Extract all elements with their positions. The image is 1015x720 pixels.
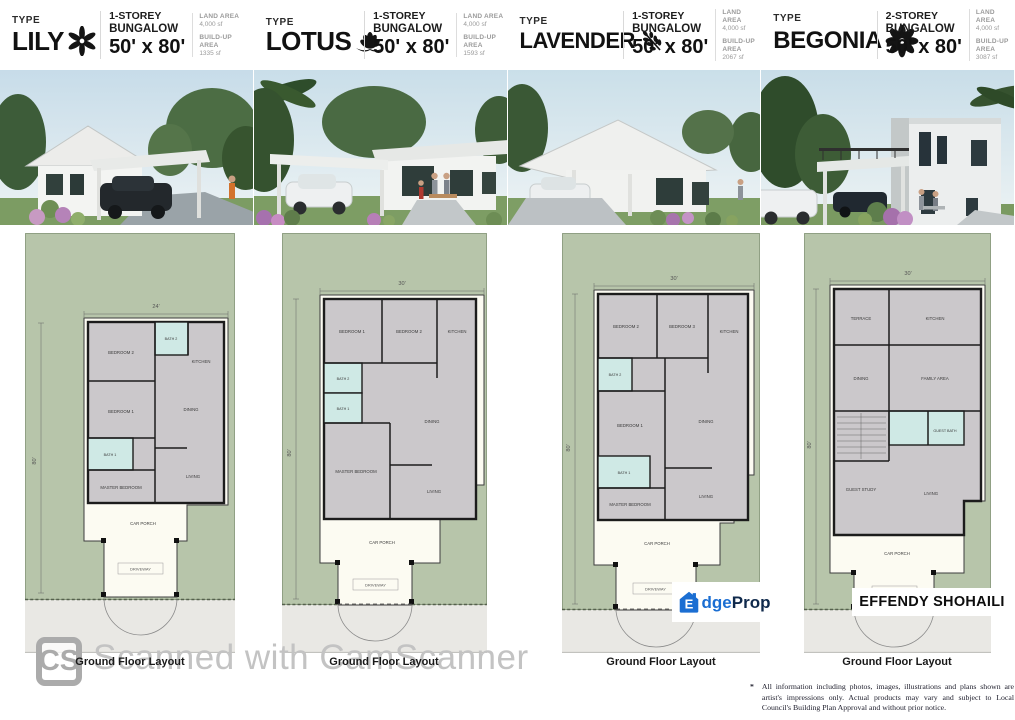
room-label: DRIVEWAY [645, 587, 666, 592]
room-label: BATH 2 [337, 377, 350, 381]
lotus-render-illustration [254, 70, 508, 225]
plan-depth-dim: 80' [287, 449, 293, 456]
header-lily: TYPE LILY 1-STOREY BUNGALOW [0, 0, 254, 70]
disclaimer: * All information including photos, imag… [748, 682, 1014, 714]
land-area-value: 4,000 sf [976, 25, 1011, 32]
room-label: MASTER BEDROOM [100, 485, 142, 490]
house-name-begonia: BEGONIA [773, 29, 882, 53]
plan-caption-lily: Ground Floor Layout [55, 656, 205, 668]
room-label: KITCHEN [448, 329, 467, 334]
lot-size: 50' x 80' [109, 36, 185, 59]
room-label: LIVING [699, 494, 714, 499]
room-label: LIVING [924, 491, 939, 496]
building-label: BUNGALOW [373, 23, 449, 36]
land-area-label: LAND AREA [976, 9, 1011, 25]
lavender-render-illustration [508, 70, 762, 225]
room-label: BEDROOM 3 [669, 324, 695, 329]
room-label: CAR PORCH [644, 541, 670, 546]
lily-render-illustration [0, 70, 254, 225]
edgeprop-text-dark: Prop [732, 593, 771, 612]
type-label: TYPE [12, 15, 92, 26]
plan-caption-lotus: Ground Floor Layout [309, 656, 459, 668]
begonia-render-illustration [761, 70, 1015, 225]
plan-width-dim: 30' [670, 276, 677, 282]
room-label: KITCHEN [720, 329, 739, 334]
buildup-area-label: BUILD-UP AREA [199, 34, 249, 50]
agent-name-box: EFFENDY SHOHAILI [852, 588, 1012, 616]
lily-flower-icon [67, 26, 97, 56]
room-label: DRIVEWAY [365, 583, 386, 588]
buildup-area-label: BUILD-UP AREA [976, 38, 1011, 54]
plan-width-dim: 24' [152, 304, 159, 310]
room-label: BEDROOM 1 [339, 329, 365, 334]
room-label: TERRACE [851, 316, 872, 321]
room-label: CAR PORCH [884, 551, 910, 556]
room-label: CAR PORCH [369, 540, 395, 545]
room-label: LIVING [186, 474, 201, 479]
room-label: KITCHEN [926, 316, 945, 321]
room-label: GUEST STUDY [846, 487, 877, 492]
building-label: BUNGALOW [632, 23, 708, 36]
edgeprop-house-icon: E [676, 589, 702, 615]
room-label: BATH 1 [104, 453, 117, 457]
buildup-area-label: BUILD-UP AREA [722, 38, 757, 54]
room-label: BATH 2 [609, 373, 622, 377]
plan-depth-dim: 80' [32, 457, 38, 464]
edgeprop-house-letter: E [684, 597, 693, 612]
room-label: DINING [183, 407, 199, 412]
header-begonia: TYPE BEGONIA [761, 0, 1015, 70]
land-area-value: 4,000 sf [463, 21, 503, 28]
room-label: BATH 2 [165, 337, 178, 341]
house-name-lily: LILY [12, 28, 64, 54]
plan-depth-dim: 80' [566, 444, 572, 451]
room-label: DINING [853, 376, 869, 381]
plan-depth-dim: 80' [807, 441, 813, 448]
building-label: BUNGALOW [109, 23, 185, 36]
room-label: DINING [424, 419, 440, 424]
lot-size: 50' x 80' [632, 36, 708, 59]
edgeprop-text-blue: dge [702, 593, 732, 612]
disclaimer-text: All information including photos, images… [762, 682, 1014, 714]
plan-width-dim: 30' [398, 281, 405, 287]
buildup-area-value: 1335 sf [199, 50, 249, 57]
room-label: FAMILY AREA [921, 376, 949, 381]
room-label: BEDROOM 1 [617, 423, 643, 428]
building-label: BUNGALOW [886, 23, 962, 36]
plan-caption-lavender: Ground Floor Layout [586, 656, 736, 668]
agent-name: EFFENDY SHOHAILI [859, 594, 1005, 610]
house-name-lotus: LOTUS [266, 28, 352, 54]
room-label: BATH 1 [337, 407, 350, 411]
land-area-label: LAND AREA [463, 13, 503, 21]
room-label: MASTER BEDROOM [335, 469, 377, 474]
room-label: DRIVEWAY [130, 567, 151, 572]
storey-label: 1-STOREY [373, 11, 449, 23]
header-row: TYPE LILY 1-STOREY BUNGALOW [0, 0, 1015, 70]
land-area-label: LAND AREA [722, 9, 757, 25]
renders-row [0, 70, 1015, 225]
room-label: MASTER BEDROOM [609, 502, 651, 507]
buildup-area-label: BUILD-UP AREA [463, 34, 503, 50]
room-label: BEDROOM 1 [108, 409, 134, 414]
header-lavender: TYPE LAVENDER 1-ST [508, 0, 762, 70]
house-name-lavender: LAVENDER [520, 30, 635, 52]
lily-floor-plan: 24' 80' BEDROOM 2 BATH 2 KITCHEN BEDROOM… [25, 233, 235, 658]
plan-caption-begonia: Ground Floor Layout [822, 656, 972, 668]
land-area-value: 4,000 sf [722, 25, 757, 32]
room-label: BATH 1 [618, 471, 631, 475]
land-area-label: LAND AREA [199, 13, 249, 21]
disclaimer-bullet: * [748, 682, 754, 714]
storey-label: 1-STOREY [109, 11, 185, 23]
buildup-area-value: 2067 sf [722, 54, 757, 61]
room-label: BEDROOM 2 [108, 350, 134, 355]
lotus-floor-plan: 30' 80' BEDROOM 1 BEDROOM 2 KITCHEN BATH… [282, 233, 487, 658]
buildup-area-value: 1593 sf [463, 50, 503, 57]
land-area-value: 4,000 sf [199, 21, 249, 28]
room-label: BEDROOM 2 [396, 329, 422, 334]
room-label: BEDROOM 2 [613, 324, 639, 329]
type-label: TYPE [773, 13, 868, 24]
storey-label: 2-STOREY [886, 11, 962, 23]
room-label: LIVING [427, 489, 442, 494]
type-label: TYPE [520, 16, 616, 27]
header-lotus: TYPE LOTUS 1-STOREY BUNGALOW 50' [254, 0, 508, 70]
plan-width-dim: 30' [904, 271, 911, 277]
buildup-area-value: 3087 sf [976, 54, 1011, 61]
edgeprop-logo: E dgeProp [672, 582, 774, 622]
room-label: GUEST BATH [933, 429, 957, 433]
room-label: CAR PORCH [130, 521, 156, 526]
room-label: DINING [698, 419, 714, 424]
room-label: KITCHEN [192, 359, 211, 364]
storey-label: 1-STOREY [632, 11, 708, 23]
lot-size: 50' x 80' [886, 36, 962, 59]
lot-size: 50' x 80' [373, 36, 449, 59]
